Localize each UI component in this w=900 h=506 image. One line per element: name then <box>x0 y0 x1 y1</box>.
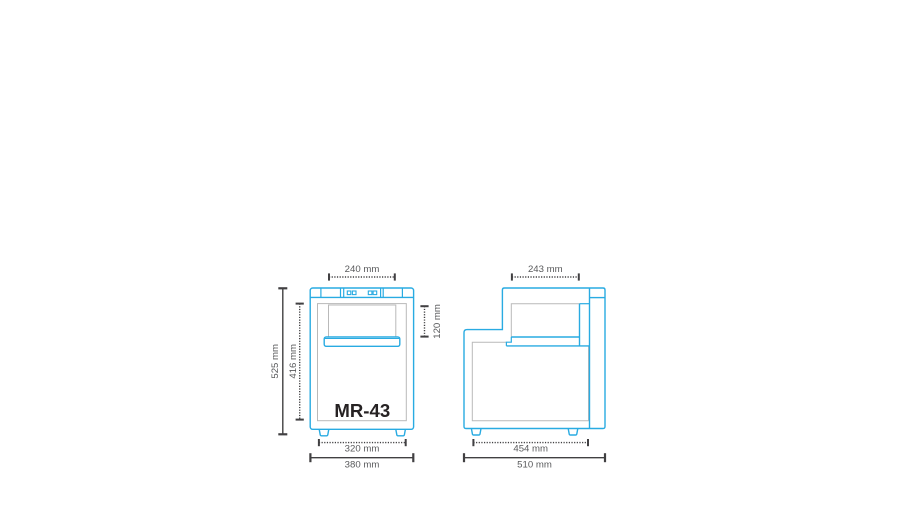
svg-text:MR-43: MR-43 <box>334 400 390 421</box>
svg-text:240 mm: 240 mm <box>345 264 380 275</box>
svg-text:320 mm: 320 mm <box>345 444 380 455</box>
svg-text:510 mm: 510 mm <box>517 459 552 470</box>
svg-text:243 mm: 243 mm <box>528 264 563 275</box>
svg-text:416 mm: 416 mm <box>288 344 299 379</box>
svg-text:525 mm: 525 mm <box>270 344 281 379</box>
svg-text:454 mm: 454 mm <box>513 444 548 455</box>
svg-text:120 mm: 120 mm <box>432 304 443 339</box>
svg-text:380 mm: 380 mm <box>345 459 380 470</box>
